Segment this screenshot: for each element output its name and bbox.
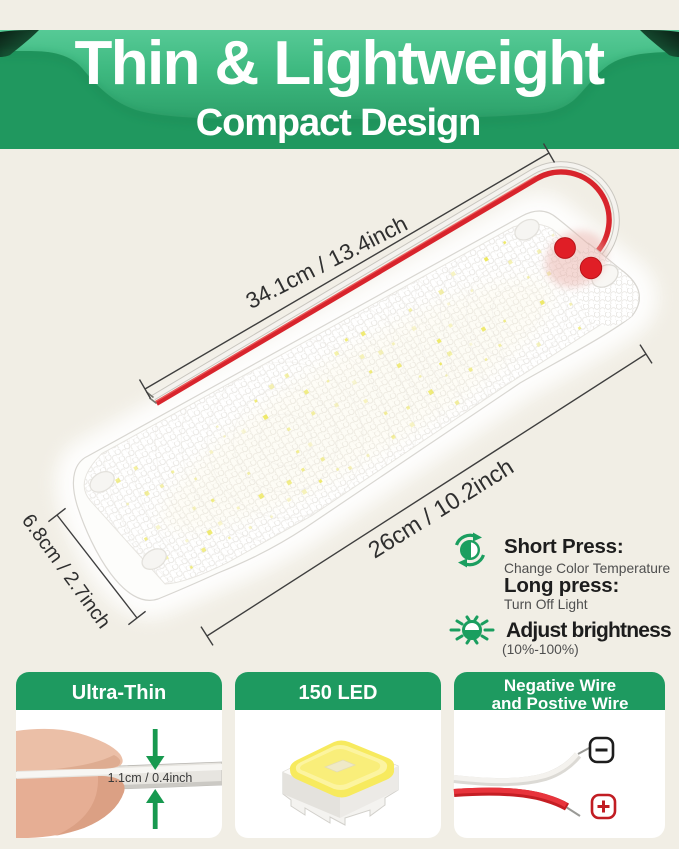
- svg-text:and Postive Wire: and Postive Wire: [492, 694, 629, 713]
- svg-text:Compact Design: Compact Design: [196, 102, 480, 144]
- svg-text:150 LED: 150 LED: [299, 682, 378, 704]
- svg-text:Adjust brightness: Adjust brightness: [506, 619, 671, 642]
- svg-text:Thin & Lightweight: Thin & Lightweight: [74, 29, 604, 98]
- svg-text:Negative Wire: Negative Wire: [504, 676, 616, 695]
- svg-text:(10%-100%): (10%-100%): [502, 642, 579, 657]
- svg-text:Long press:: Long press:: [504, 574, 619, 597]
- svg-text:Turn Off Light: Turn Off Light: [504, 597, 588, 612]
- svg-text:1.1cm / 0.4inch: 1.1cm / 0.4inch: [108, 771, 193, 785]
- svg-text:Ultra-Thin: Ultra-Thin: [72, 682, 166, 704]
- svg-text:Short Press:: Short Press:: [504, 535, 624, 558]
